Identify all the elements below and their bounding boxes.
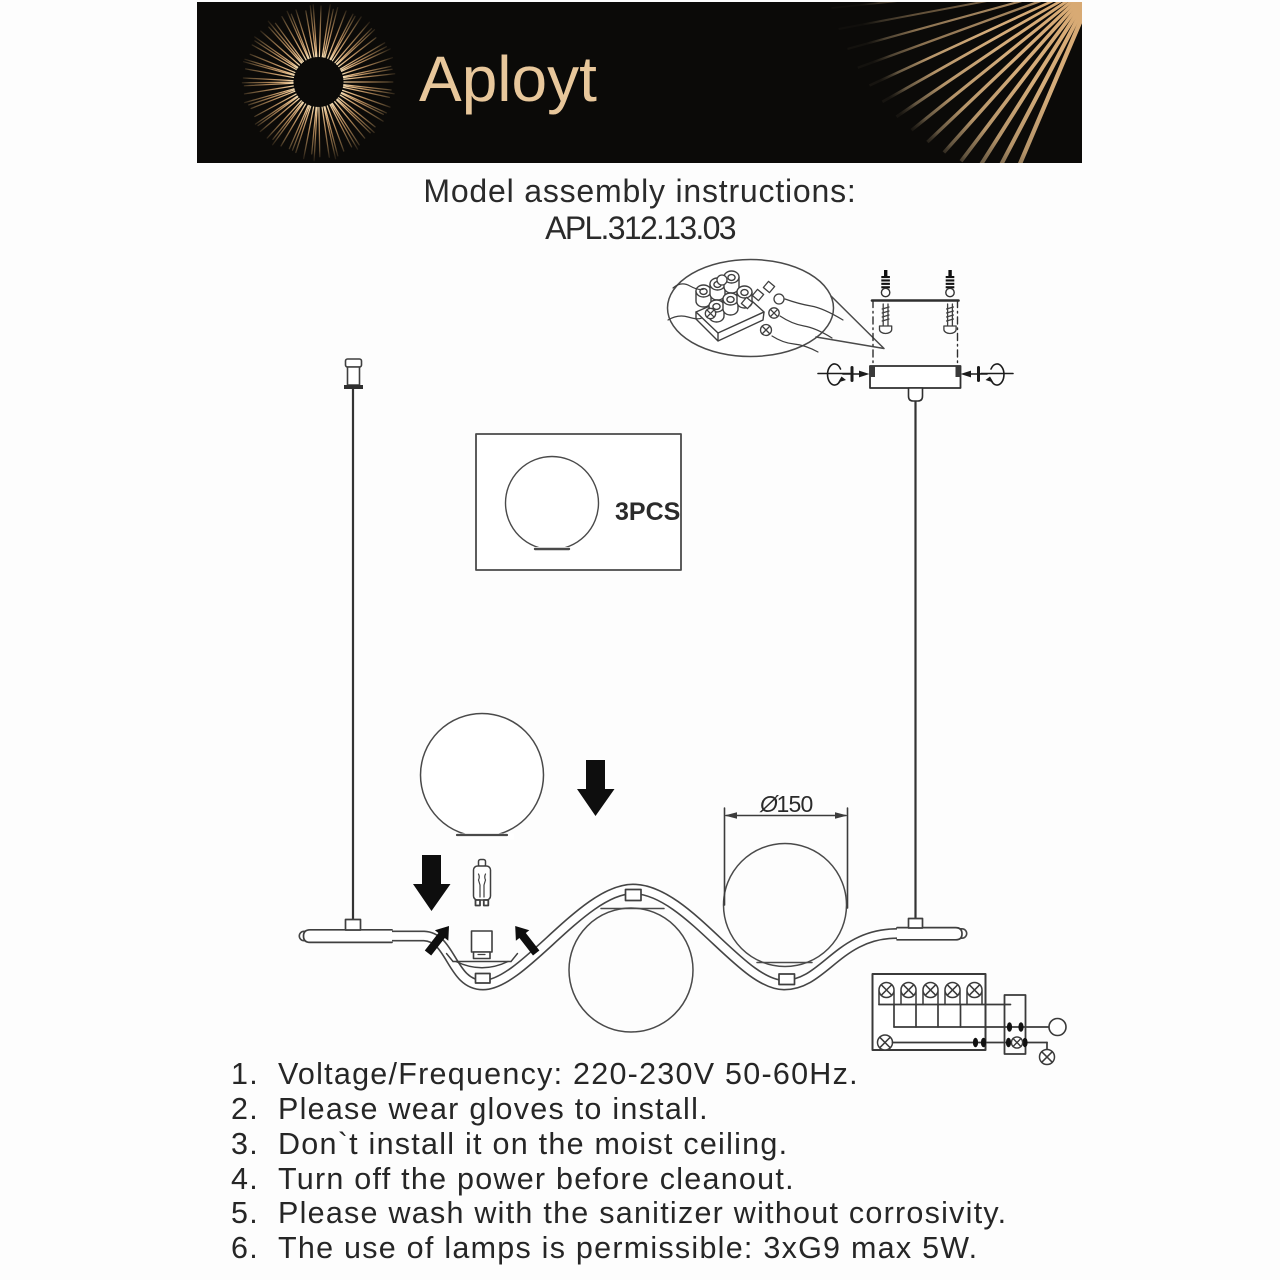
svg-text:3PCS: 3PCS — [615, 498, 680, 526]
svg-text:150: 150 — [777, 791, 813, 817]
